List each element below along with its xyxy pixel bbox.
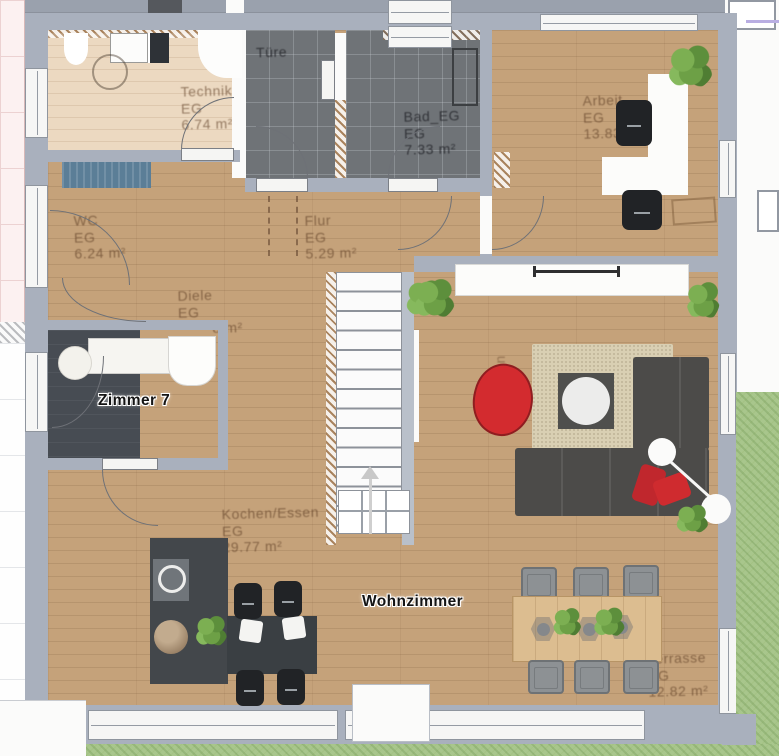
grass-bottom [25,744,779,756]
door-frame-tuerraum [321,60,335,100]
window-top-bad-upper[interactable] [388,0,452,24]
dining-chair-bottom-1[interactable] [528,660,564,694]
window-arbeit-right[interactable] [719,140,736,198]
right-lavender-line [746,20,779,23]
bath-mat-wc[interactable] [62,162,151,188]
dining-chair-bottom-3[interactable] [623,660,659,694]
room-floor: EG [305,228,357,246]
plant-living-right[interactable] [686,276,720,322]
cooktop-burner[interactable] [158,565,186,593]
wall-zimmer7-right [218,320,228,470]
hatch-stairs-left-wall [326,272,336,545]
window-top-arbeit[interactable] [540,14,698,31]
office-chair-upper[interactable] [616,100,652,146]
hatch-wall-tuerraum-bad [335,100,346,178]
plant-dining-2[interactable] [592,604,626,638]
plant-arbeit-corner[interactable] [666,40,714,90]
door-gap-arbeit[interactable] [480,196,492,254]
grass-right [736,392,779,756]
kitchen-chair-1[interactable] [234,583,262,619]
plant-dining-1[interactable] [552,604,582,638]
stairs-landing [338,490,410,534]
sofa-right-section[interactable] [633,357,709,450]
place-setting-2 [282,616,307,641]
coffee-table[interactable] [562,377,610,425]
door-bad[interactable] [388,178,438,192]
window-bottom-kitchen[interactable] [88,710,338,740]
toilet-technik[interactable] [64,33,88,65]
room-name: Kochen/Essen [221,504,319,523]
room-label-kochen-essen: Kochen/Essen EG 29.77 m² [221,504,320,556]
window-technik-left[interactable] [25,68,48,138]
room-name: Flur [304,211,356,229]
tv-edge-right [617,266,620,277]
room-name: Türe [256,44,288,61]
plant-living-left[interactable] [412,274,456,320]
room-label-tuerraum: Türe [256,44,288,61]
door-zimmer7[interactable] [102,458,158,470]
arc-lamp-shade[interactable] [648,438,676,466]
window-wc-left[interactable] [25,185,48,288]
stairs-glass-panel [414,330,419,442]
hatch-flur-arbeit [494,152,510,188]
office-chair-lower[interactable] [622,190,662,230]
rug-outline-arbeit [671,196,717,225]
window-terrasse-right[interactable] [719,628,737,714]
sideboard-tv[interactable] [455,264,689,296]
door-tuerraum[interactable] [256,178,308,192]
label-wohnzimmer[interactable]: Wohnzimmer [362,593,463,611]
top-strip-dark-block [148,0,182,13]
left-white-margin [0,343,25,756]
kitchen-chair-3[interactable] [236,670,264,706]
window-zimmer7-left[interactable] [25,352,48,432]
bottom-left-corner [0,700,86,756]
tv-edge-left [533,266,536,277]
floorplan-canvas[interactable]: Technik EG 6.74 m² Türe Bad_EG EG 7.33 m… [0,0,779,756]
dining-chair-top-3[interactable] [623,565,659,599]
left-neighbor-grid [0,0,25,322]
room-name: Diele [177,286,242,304]
room-floor: EG [178,303,243,321]
right-neighbor-box-small [757,190,779,232]
corner-wall-bottom-right [722,714,756,745]
desk-zimmer7[interactable] [168,336,216,386]
dining-chair-bottom-2[interactable] [574,660,610,694]
room-name: Bad_EG [403,107,460,125]
place-setting-1 [239,619,264,644]
dashed-opening-flur [268,196,298,256]
niche-tuerraum-bad [335,33,346,100]
stairs-direction-arrow [361,466,379,479]
washing-machine-icon[interactable] [92,54,128,90]
stool-round[interactable] [154,620,188,654]
window-top-bad-lower[interactable] [388,26,452,48]
top-strip-gap [226,0,244,13]
kitchen-chair-4[interactable] [277,669,305,705]
door-technik[interactable] [181,148,234,161]
shower-outline-bad[interactable] [452,48,478,106]
appliance-technik[interactable] [148,33,169,63]
kitchen-chair-2[interactable] [274,581,302,617]
room-label-flur: Flur EG 5.29 m² [304,211,357,262]
room-area: 29.77 m² [222,537,320,556]
tv-screen[interactable] [535,270,619,273]
left-hatch-strip [0,322,25,343]
plant-living-mid[interactable] [674,502,710,534]
plant-kitchen[interactable] [194,612,228,648]
stairs-direction-stem [369,479,372,534]
terrace-door[interactable] [352,684,430,742]
room-area: 5.29 m² [305,244,357,262]
label-zimmer7[interactable]: Zimmer 7 [98,392,170,410]
window-wohnzimmer-right[interactable] [720,353,736,435]
